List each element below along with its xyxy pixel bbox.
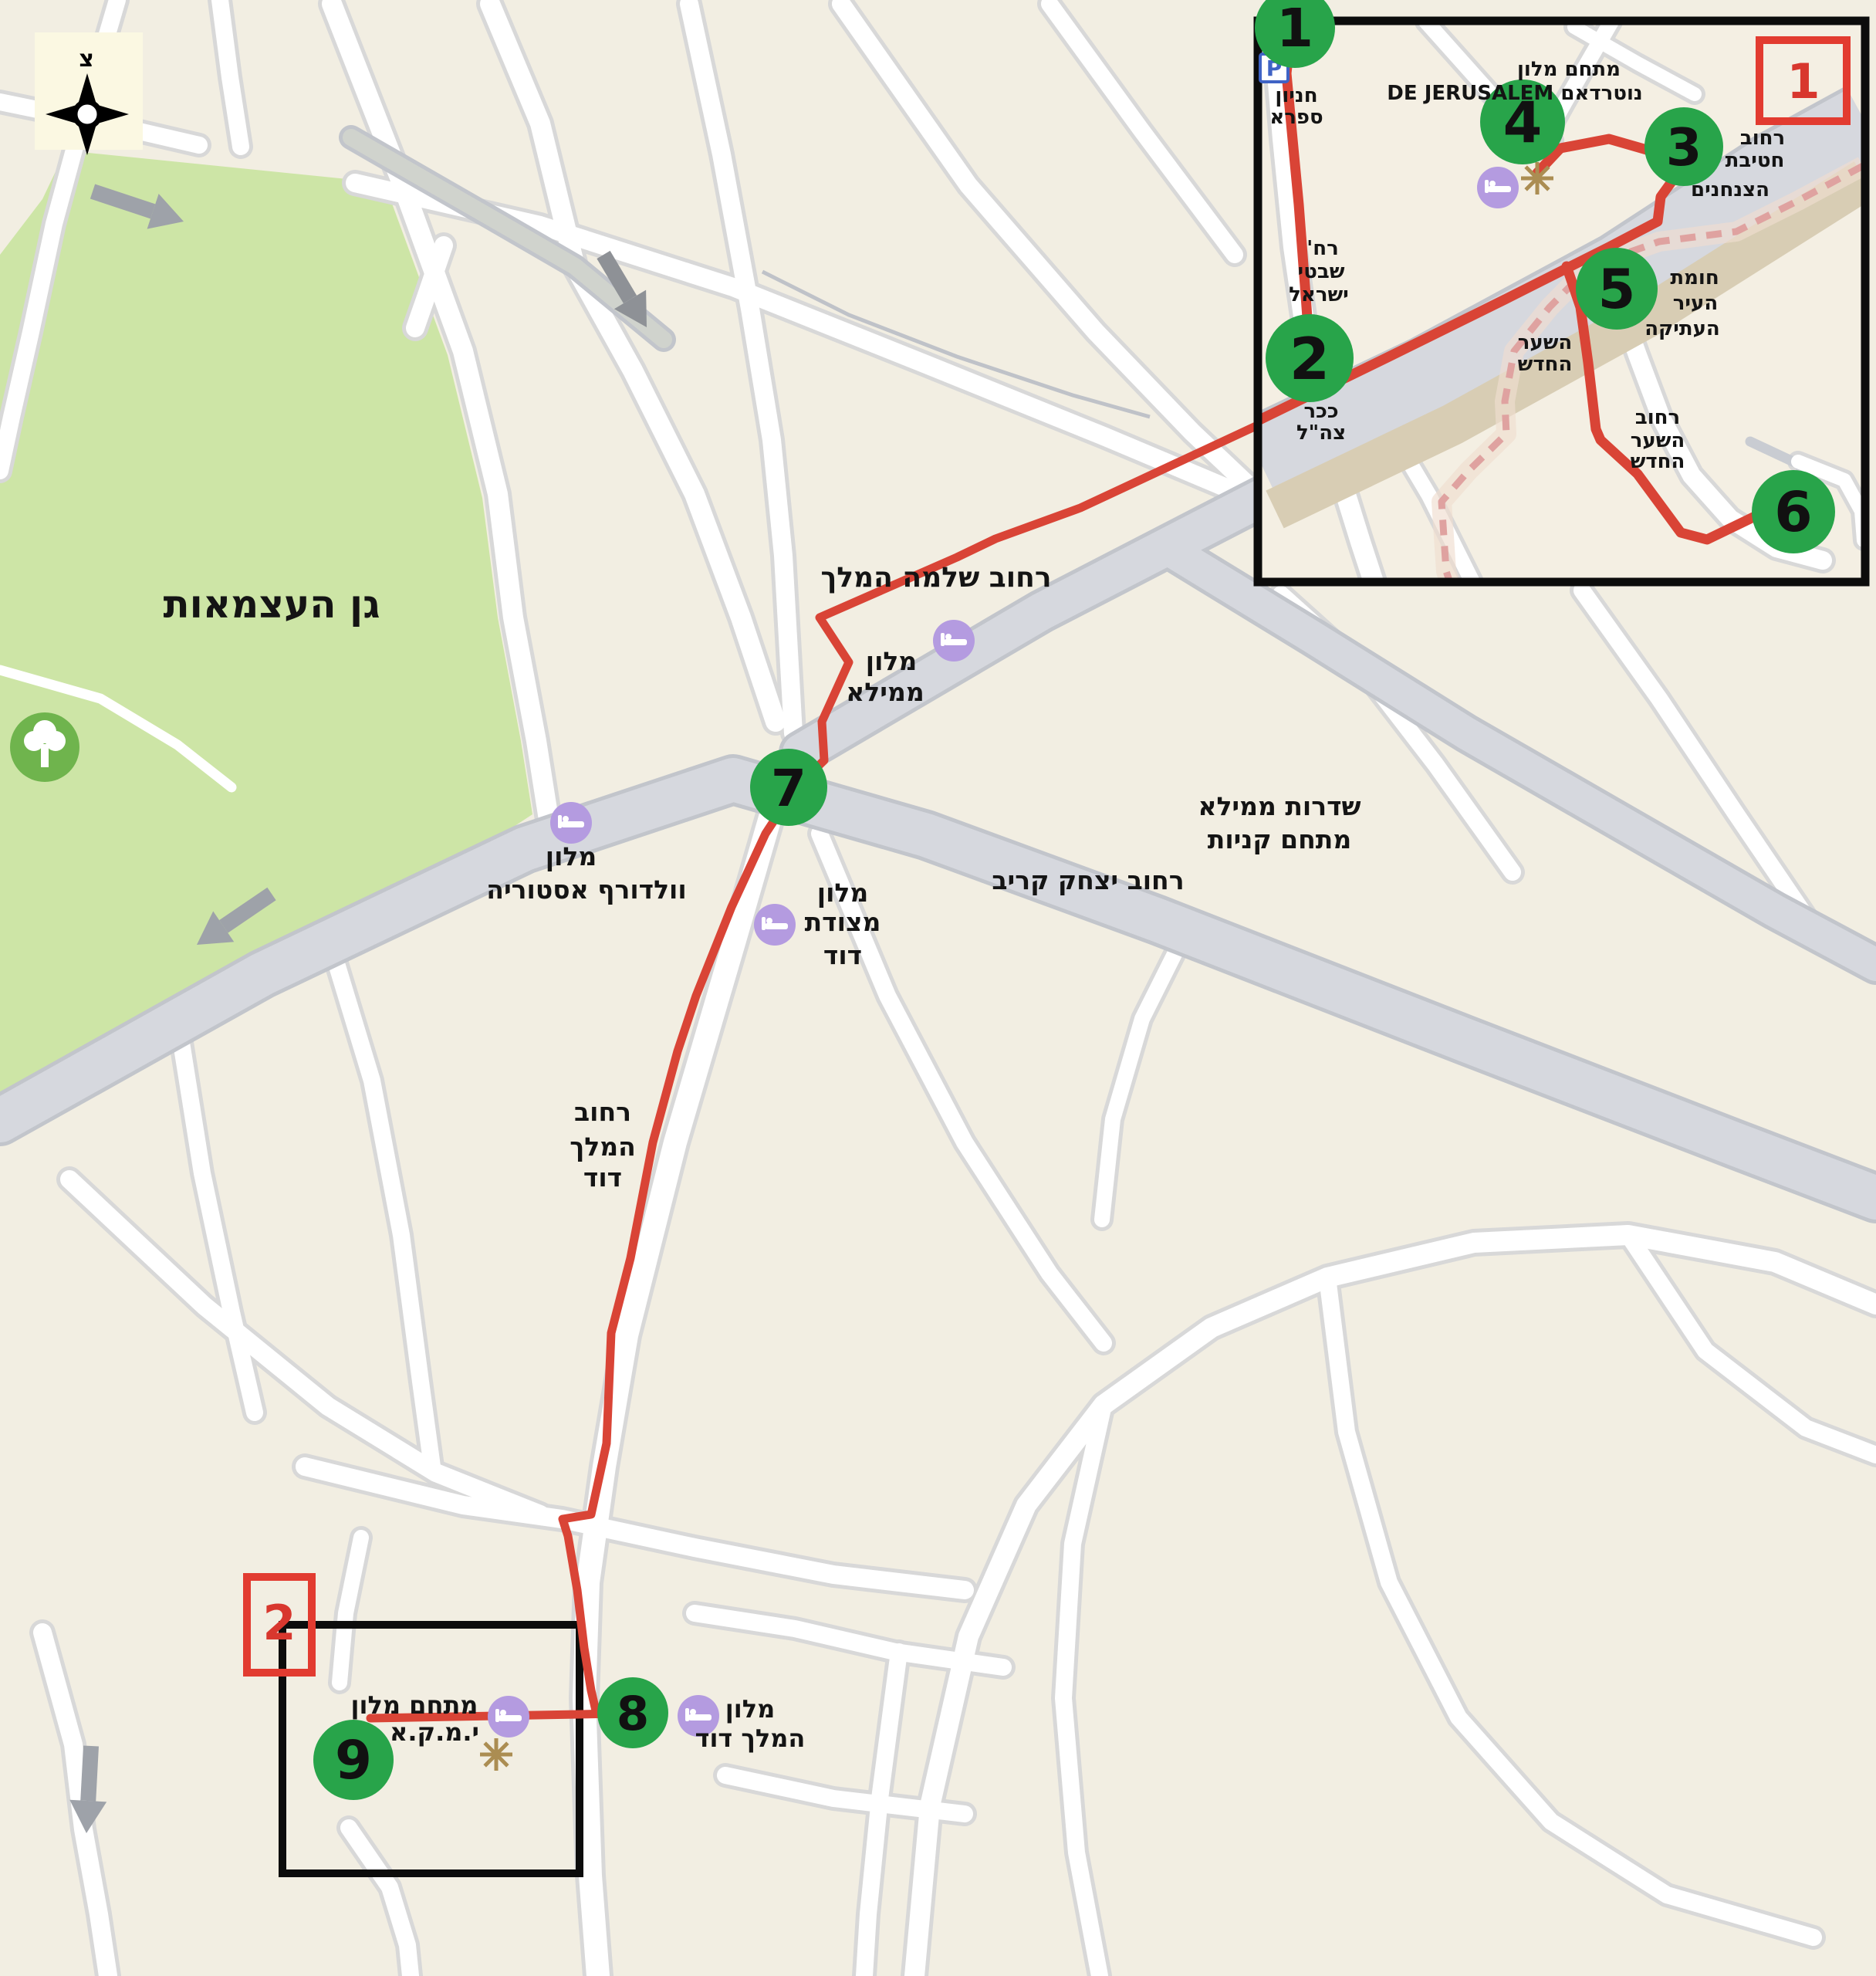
marker-3: 3 [1644, 107, 1723, 186]
mamilla-blvd-label-line-1: שדרות ממילא [1198, 791, 1361, 821]
marker-9-number: 9 [335, 1730, 372, 1792]
street-shlomo-hamelech-line-1: רחוב שלמה המלך [820, 562, 1051, 594]
hotel-icon-ymca-bed-base [499, 1715, 522, 1721]
hotel-citadel-label-line-1: מלון [817, 878, 869, 908]
street-new-gate: רחובהשערהחדש [1631, 406, 1685, 473]
street-hativat-tzanhanim-line-1: רחוב [1740, 127, 1785, 150]
notre-dame-label-line-2: נוטרדאם DE JERUSALEM [1387, 82, 1642, 105]
marker-8: 8 [597, 1677, 668, 1748]
marker-2-number: 2 [1290, 325, 1330, 393]
hotel-icon-king-david-bed-headboard [685, 1708, 689, 1721]
tzahal-square-label: ככרצה"ל [1296, 400, 1346, 445]
hotel-icon-king-david-bed-base [688, 1714, 712, 1721]
street-hativat-tzanhanim-line-3: הצנחנים [1691, 178, 1770, 201]
compass-ring [75, 102, 100, 127]
street-king-david-line-3: דוד [583, 1162, 622, 1193]
street-new-gate-line-2: השער [1631, 429, 1685, 452]
hotel-citadel-label-line-3: דוד [823, 940, 862, 970]
hotel-icon-mamilla-bed-base [944, 639, 967, 645]
street-new-gate-line-1: רחוב [1635, 406, 1680, 429]
tree-trunk [41, 744, 49, 767]
park-name-line-1: גן העצמאות [163, 582, 380, 627]
hotel-icon-mamilla [933, 620, 975, 661]
marker-9: 9 [313, 1720, 394, 1800]
hotel-icon-king-david-bed-pillow [690, 1709, 696, 1715]
old-city-wall-label-line-2: העיר [1673, 292, 1719, 315]
marker-5-number: 5 [1598, 258, 1636, 321]
asterisk-icon-ymca [480, 1738, 512, 1771]
ymca-complex-label-line-1: מתחם מלון [351, 1690, 478, 1720]
hotel-icon-notre-dame-bed-base [1488, 186, 1511, 192]
hotel-icon-notre-dame [1477, 167, 1519, 208]
hotel-waldorf-label-line-2: וולדורף אסטוריה [486, 875, 686, 905]
street-king-david-line-2: המלך [570, 1132, 636, 1162]
hotel-icon-waldorf-bed-pillow [563, 816, 569, 822]
hotel-king-david-label-line-1: מלון [725, 1694, 775, 1724]
marker-8-number: 8 [617, 1687, 649, 1741]
hotel-icon-waldorf-bed-base [561, 821, 584, 827]
street-shivtei-israel-line-1: רח' [1306, 237, 1338, 260]
hotel-icon-waldorf [550, 802, 592, 844]
hotel-citadel-label-line-2: מצודת [805, 907, 881, 937]
red-box-1-number: 1 [1786, 53, 1820, 110]
marker-6: 6 [1752, 470, 1835, 553]
street-yitzhak-kariv: רחוב יצחק קריב [992, 865, 1184, 895]
new-gate-label-line-2: החדש [1518, 353, 1573, 376]
hotel-icon-ymca-bed-pillow [500, 1710, 506, 1716]
hotel-icon-david-citadel-bed-base [765, 923, 788, 929]
street-king-david-line-1: רחוב [574, 1097, 631, 1127]
arrow-south-icon-shaft [88, 1746, 91, 1801]
tzahal-square-label-line-1: ככר [1303, 400, 1338, 423]
park-name: גן העצמאות [163, 582, 380, 627]
compass-rose: צ [35, 32, 143, 155]
notre-dame-label-line-1: מתחם מלון [1517, 58, 1621, 81]
hotel-icon-mamilla-bed-headboard [941, 633, 945, 646]
mamilla-blvd-label-line-2: מתחם קניות [1208, 824, 1351, 854]
street-shlomo-hamelech: רחוב שלמה המלך [820, 562, 1051, 594]
compass-north-letter: צ [79, 46, 94, 73]
new-gate-label: השערהחדש [1518, 331, 1573, 376]
hotel-waldorf-label-line-1: מלון [546, 841, 597, 871]
marker-7: 7 [750, 749, 827, 826]
marker-2: 2 [1266, 314, 1354, 402]
hotel-icon-mamilla-bed-pillow [945, 634, 952, 640]
marker-3-number: 3 [1666, 117, 1702, 178]
hotel-king-david-label-line-2: המלך דוד [695, 1724, 806, 1753]
hotel-icon-ymca-bed-headboard [495, 1709, 499, 1722]
hotel-icon-david-citadel-bed-pillow [766, 918, 772, 924]
safra-parking-label: חניוןספרא [1269, 84, 1323, 129]
new-gate-label-line-1: השער [1518, 331, 1573, 354]
street-yitzhak-kariv-line-1: רחוב יצחק קריב [992, 865, 1184, 895]
street-hativat-tzanhanim-line-2: חטיבת [1726, 149, 1785, 172]
asterisk-icon-notre-dame [1521, 162, 1553, 195]
street-shivtei-israel-line-3: ישראל [1289, 283, 1349, 306]
safra-parking-label-line-2: ספרא [1269, 106, 1323, 129]
tzahal-square-label-line-2: צה"ל [1296, 421, 1346, 445]
safra-parking-label-line-1: חניון [1275, 84, 1317, 107]
ymca-complex-label-line-2: י.מ.ק.א [390, 1717, 479, 1747]
hotel-icon-ymca [488, 1696, 529, 1737]
hotel-icon-david-citadel [754, 904, 796, 946]
street-shivtei-israel-line-2: שבטי [1298, 260, 1345, 283]
hotel-icon-notre-dame-bed-headboard [1485, 180, 1489, 193]
map-canvas: צP123456789גן העצמאותרחוב שלמה המלךמלוןמ… [0, 0, 1876, 1976]
tree-icon [10, 712, 79, 782]
red-box-2-number: 2 [262, 1595, 296, 1651]
hotel-mamilla-label-line-1: מלון [866, 646, 918, 676]
marker-6-number: 6 [1774, 480, 1812, 544]
hotel-icon-waldorf-bed-headboard [558, 815, 562, 828]
street-new-gate-line-3: החדש [1631, 450, 1685, 473]
hotel-icon-david-citadel-bed-headboard [762, 917, 766, 930]
old-city-wall-label-line-3: העתיקה [1644, 317, 1720, 340]
marker-7-number: 7 [771, 759, 806, 818]
hotel-icon-notre-dame-bed-pillow [1489, 181, 1496, 187]
old-city-wall-label-line-1: חומת [1670, 266, 1719, 289]
marker-1-number: 1 [1276, 0, 1313, 59]
hotel-mamilla-label-line-2: ממילא [846, 677, 924, 707]
